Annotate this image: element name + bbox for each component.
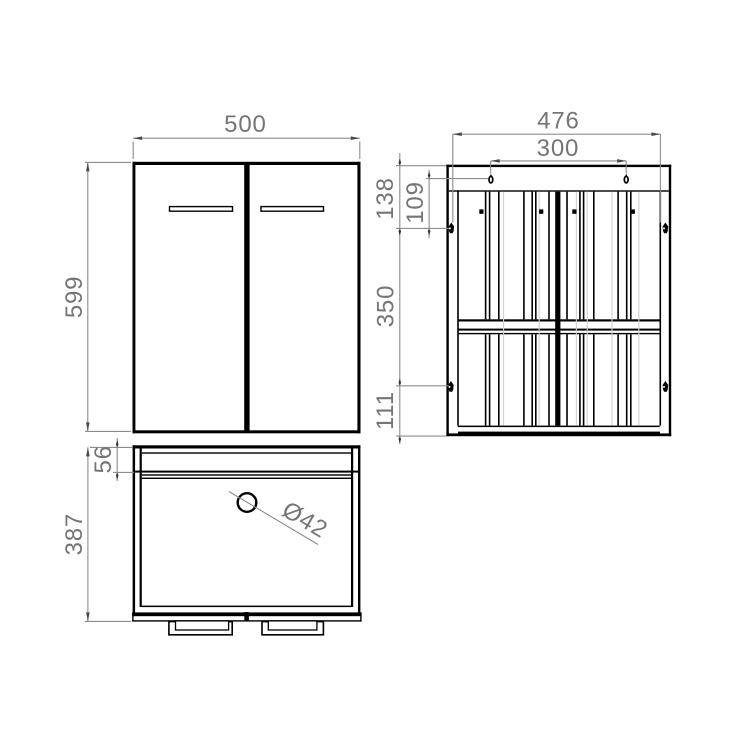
svg-text:109: 109	[402, 181, 429, 223]
svg-text:138: 138	[372, 177, 399, 219]
svg-text:56: 56	[90, 445, 117, 473]
svg-text:387: 387	[61, 513, 88, 555]
svg-text:300: 300	[537, 135, 579, 162]
svg-text:476: 476	[537, 108, 579, 135]
svg-text:500: 500	[224, 111, 266, 138]
svg-text:599: 599	[61, 276, 88, 318]
svg-text:111: 111	[372, 391, 399, 430]
svg-text:350: 350	[373, 285, 400, 327]
